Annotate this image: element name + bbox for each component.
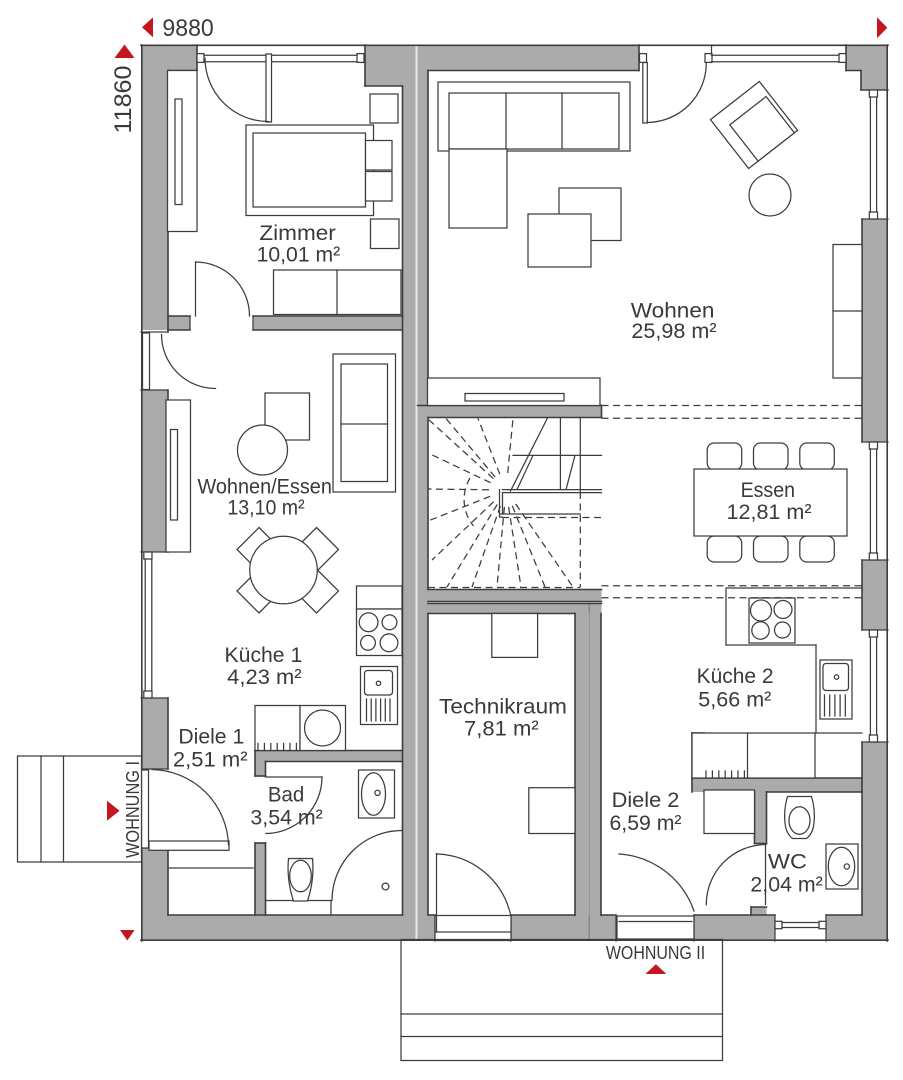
svg-text:Bad: Bad xyxy=(268,783,304,806)
svg-text:2,51 m²: 2,51 m² xyxy=(173,749,248,772)
svg-text:WOHNUNG II: WOHNUNG II xyxy=(606,943,705,963)
svg-text:11860: 11860 xyxy=(111,66,137,134)
svg-text:Küche 2: Küche 2 xyxy=(697,665,774,688)
svg-text:7,81 m²: 7,81 m² xyxy=(464,718,539,741)
svg-text:WOHNUNG I: WOHNUNG I xyxy=(123,761,143,858)
svg-text:Essen: Essen xyxy=(741,479,795,502)
svg-text:9880: 9880 xyxy=(162,16,213,42)
svg-text:Diele 1: Diele 1 xyxy=(178,725,244,748)
svg-text:Technikraum: Technikraum xyxy=(439,695,567,718)
svg-text:Diele 2: Diele 2 xyxy=(612,789,680,812)
svg-text:12,81 m²: 12,81 m² xyxy=(727,501,812,524)
svg-text:5,66 m²: 5,66 m² xyxy=(698,689,771,712)
svg-text:6,59 m²: 6,59 m² xyxy=(610,812,682,835)
svg-text:10,01 m²: 10,01 m² xyxy=(257,244,341,267)
svg-text:Zimmer: Zimmer xyxy=(259,222,335,245)
svg-text:2,04 m²: 2,04 m² xyxy=(750,873,822,896)
svg-text:3,54 m²: 3,54 m² xyxy=(250,806,322,829)
svg-text:13,10 m²: 13,10 m² xyxy=(227,497,304,520)
svg-text:Küche 1: Küche 1 xyxy=(225,644,303,667)
svg-text:4,23 m²: 4,23 m² xyxy=(227,666,301,689)
svg-text:Wohnen/Essen: Wohnen/Essen xyxy=(197,475,332,498)
svg-text:25,98 m²: 25,98 m² xyxy=(631,320,716,343)
svg-text:WC: WC xyxy=(768,850,807,873)
